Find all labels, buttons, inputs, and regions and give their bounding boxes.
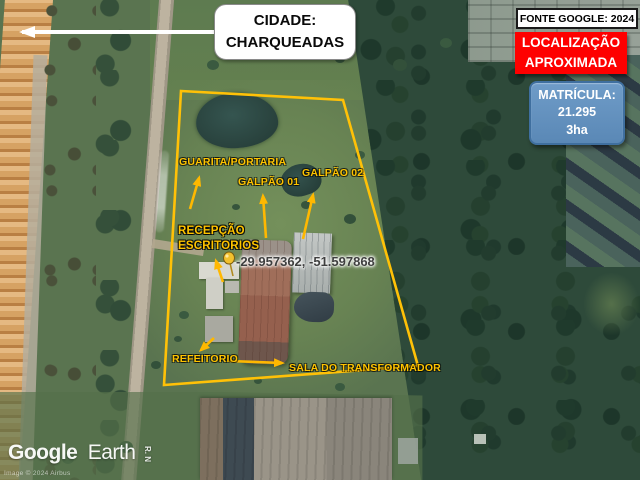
city-callout-name: CHARQUEADAS [226, 32, 344, 54]
location-line1: LOCALIZAÇÃO [522, 33, 620, 53]
label-sala-transformador: SALA DO TRANSFORMADOR [289, 362, 441, 374]
registry-box: MATRÍCULA: 21.295 3ha [529, 81, 625, 145]
escritorios-arrow [216, 261, 223, 282]
label-escritorios: ESCRITORIOS [178, 240, 259, 252]
label-guarita-portaria: GUARITA/PORTARIA [179, 156, 286, 168]
source-box: FONTE GOOGLE: 2024 [516, 8, 638, 29]
label-recepcao: RECEPÇÃO [178, 225, 245, 237]
location-line2: APROXIMADA [525, 53, 617, 73]
property-boundary [164, 91, 418, 385]
google-earth-logo: Google Earth [8, 441, 135, 465]
galpao-02-arrow [303, 195, 313, 239]
google-earth-logo-product: Earth [88, 441, 136, 464]
location-box: LOCALIZAÇÃO APROXIMADA [515, 32, 627, 74]
google-earth-logo-brand: Google [8, 441, 77, 464]
galpao-01-arrow [263, 196, 266, 238]
pushpin-icon [224, 252, 235, 276]
label-galpao-01: GALPÃO 01 [238, 176, 299, 188]
satellite-map-canvas: GUARITA/PORTARIA GALPÃO 01 GALPÃO 02 REC… [0, 0, 640, 480]
label-galpao-02: GALPÃO 02 [302, 167, 363, 179]
street-name-label: R. N [143, 446, 152, 462]
registry-area: 3ha [566, 122, 588, 140]
registry-title: MATRÍCULA: [538, 87, 616, 105]
refeitorio-arrow [201, 338, 214, 350]
imagery-copyright: Image © 2024 Airbus [4, 470, 71, 477]
coordinates-label: -29.957362, -51.597868 [236, 254, 375, 269]
source-label: FONTE GOOGLE: 2024 [520, 13, 634, 25]
label-refeitorio: REFEITORIO [172, 353, 238, 365]
city-callout-box: CIDADE: CHARQUEADAS [214, 4, 356, 60]
registry-number: 21.295 [558, 104, 596, 122]
guarita-arrow [190, 178, 199, 209]
city-callout-title: CIDADE: [254, 10, 317, 32]
